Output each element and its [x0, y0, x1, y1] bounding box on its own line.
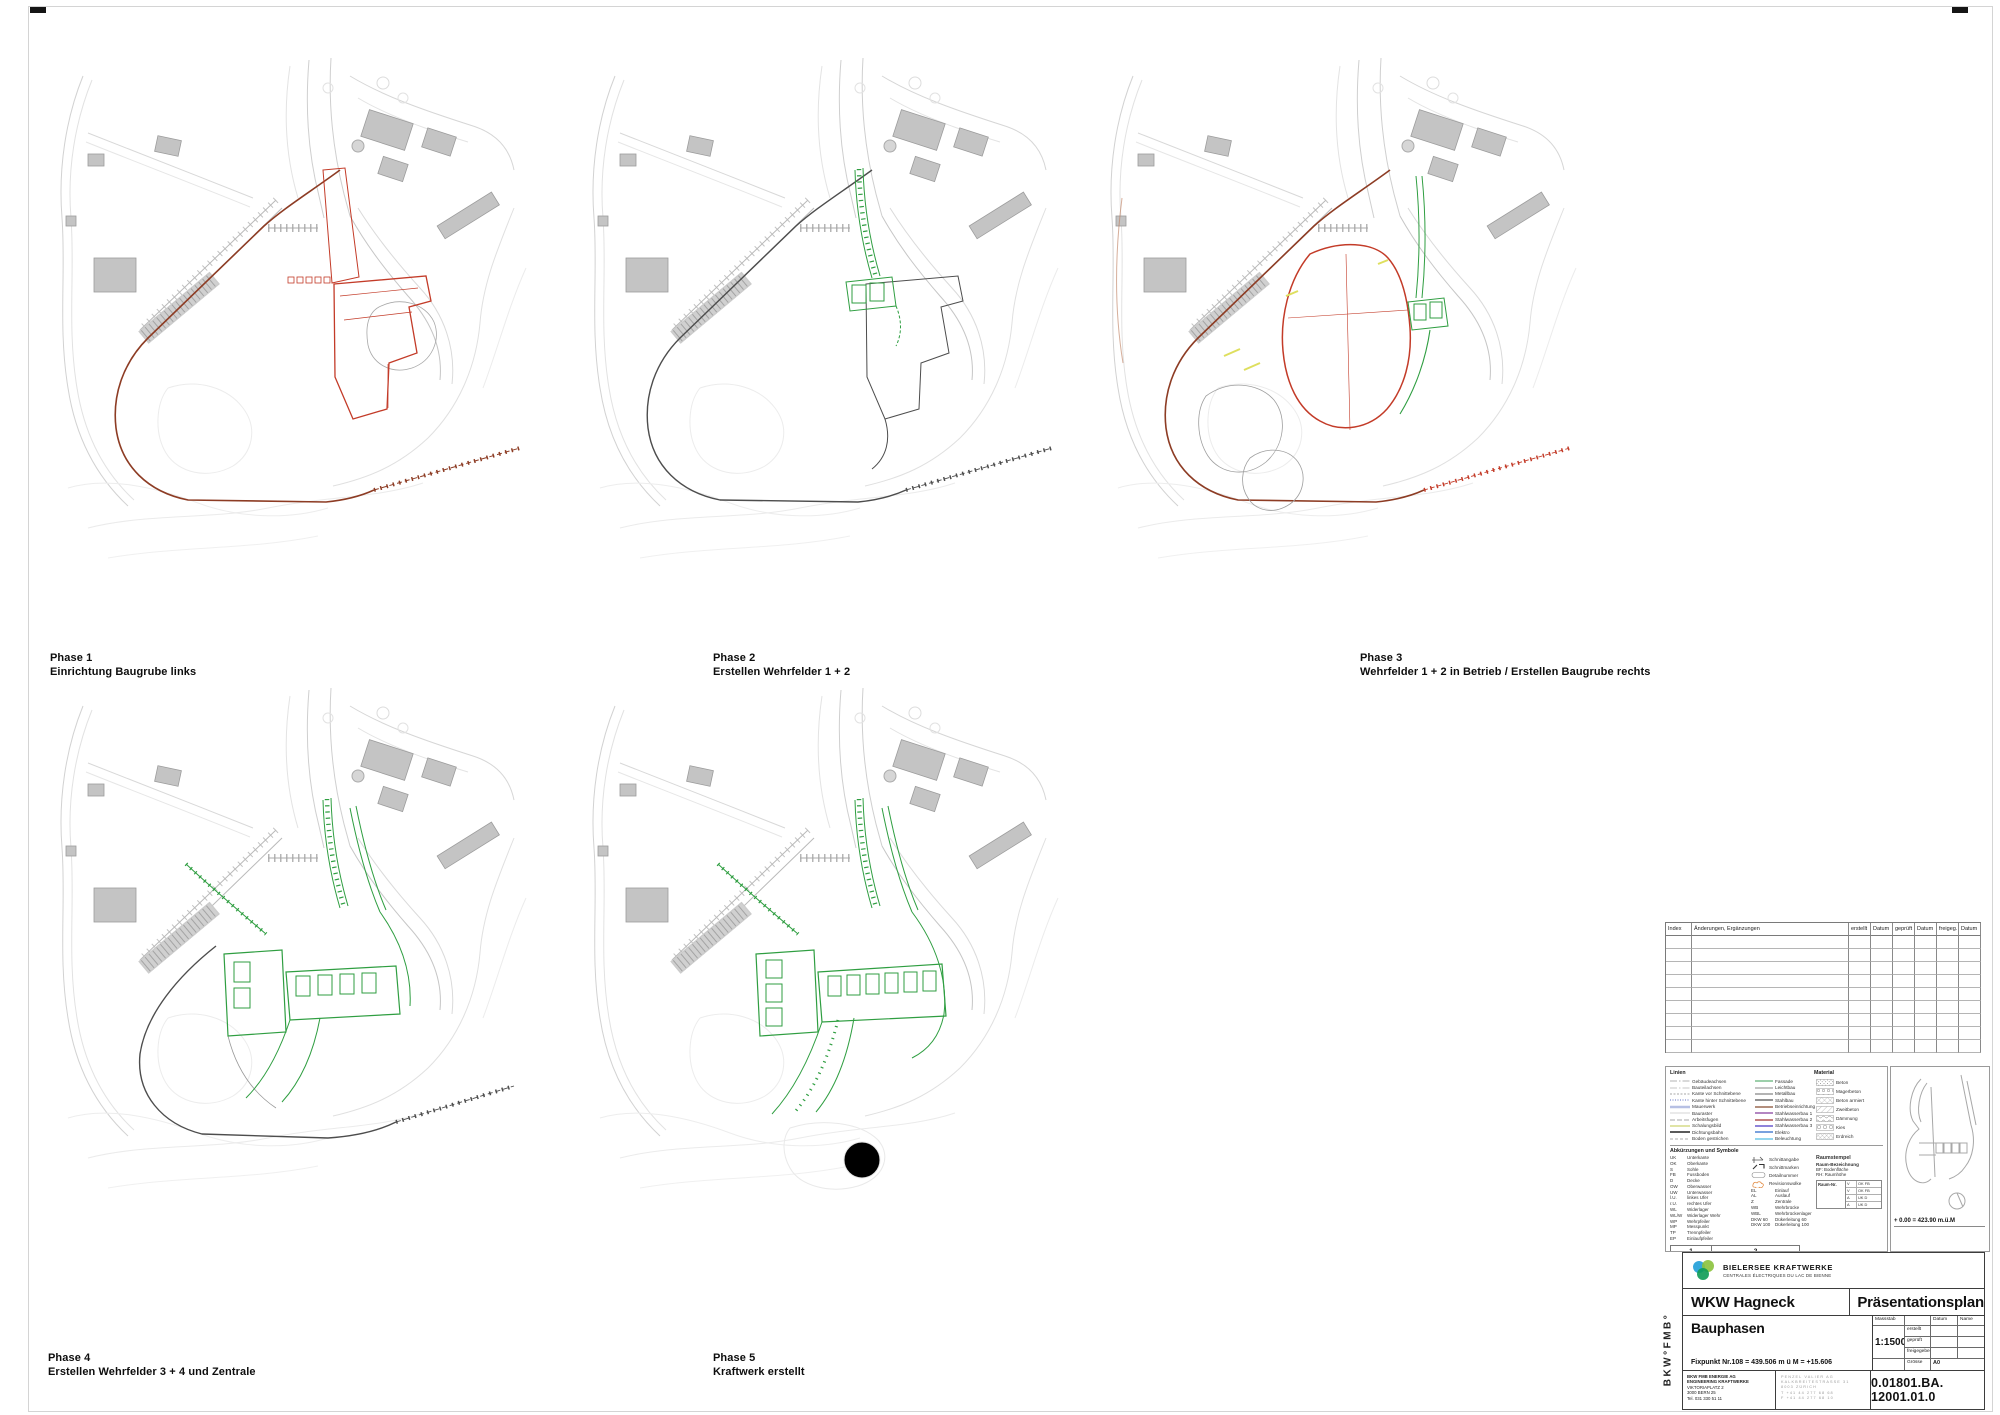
revision-cell [1849, 936, 1871, 949]
legend-label: Boden gestrichen [1692, 1136, 1728, 1141]
legend-line-item: Stahlwasserbau 3 [1755, 1123, 1815, 1129]
sheet-title-cell: Bauphasen Fixpunkt Nr.108 = 439.506 m ü … [1683, 1316, 1873, 1370]
approval-cell [1873, 1359, 1905, 1370]
approval-cell [1958, 1337, 1984, 1348]
revision-header-cell: Datum [1871, 923, 1893, 936]
raumstempel-table: Raum-Nr. V OK FBV OK FBA UK DA UK D [1816, 1180, 1882, 1209]
legend-material-item: Beton armiert [1816, 1096, 1886, 1105]
revision-cell [1871, 975, 1893, 988]
phase-2-label: Phase 2 Erstellen Wehrfelder 1 + 2 [713, 651, 850, 679]
phase-5-label: Phase 5 Kraftwerk erstellt [713, 1351, 805, 1379]
phase-1-plan [28, 58, 528, 638]
revision-cell [1959, 988, 1981, 1001]
revision-cell [1849, 988, 1871, 1001]
legend-abbreviations: Abkürzungen und Symbole UK UnterkanteOK … [1670, 1145, 1883, 1242]
document-type: Präsentationsplan [1850, 1289, 1984, 1315]
legend-symbol-item: Revisionswolke [1751, 1179, 1815, 1187]
weir-fields-1-2 [846, 168, 901, 346]
legend-label: Betriebseinrichtungen [1775, 1104, 1815, 1109]
company-address: BKW FMB ENERGIE AG ENGINEERING KRAFTWERK… [1683, 1371, 1776, 1409]
revision-cell [1893, 962, 1915, 975]
room-row: A UK D [1846, 1202, 1881, 1208]
legend-label: Fassade [1775, 1079, 1793, 1084]
revision-cell [1871, 1001, 1893, 1014]
logo-title: BIELERSEE KRAFTWERKE [1723, 1263, 1833, 1272]
phase-title: Phase 5 [713, 1351, 805, 1365]
phase-subtitle: Erstellen Wehrfelder 3 + 4 und Zentrale [48, 1365, 256, 1379]
company-line: Tel. 031 330 51 11 [1687, 1396, 1771, 1401]
revision-cell [1849, 1001, 1871, 1014]
construction-structure [288, 168, 431, 419]
revision-cell [1849, 949, 1871, 962]
room-cell: V [1846, 1188, 1857, 1194]
revision-cell [1666, 988, 1692, 1001]
detail-number-icon [1751, 1171, 1767, 1179]
revision-cell [1692, 949, 1849, 962]
revision-header-cell: freigeg. [1937, 923, 1959, 936]
legend-line-sample [1755, 1097, 1773, 1103]
marking-lines [1224, 260, 1388, 370]
revision-cell [1937, 949, 1959, 962]
phase-4-label: Phase 4 Erstellen Wehrfelder 3 + 4 und Z… [48, 1351, 256, 1379]
revision-cell [1893, 936, 1915, 949]
geprueft-label: geprüft [1905, 1337, 1931, 1348]
revision-cell [1871, 988, 1893, 1001]
legend-label: Stahlwasserbau 2 [1775, 1117, 1812, 1122]
phase-subtitle: Wehrfelder 1 + 2 in Betrieb / Erstellen … [1360, 665, 1650, 679]
raumstempel-header: Raumstempel [1816, 1155, 1886, 1162]
phase-subtitle: Kraftwerk erstellt [713, 1365, 805, 1379]
abbrev-code: DKW 100 [1751, 1222, 1775, 1228]
consultant-line: F +41 44 277 68 10 [1781, 1396, 1865, 1401]
revision-cell [1959, 1040, 1981, 1053]
room-cell: OK FB [1857, 1188, 1870, 1194]
legend-label: Schnittmarken [1769, 1165, 1799, 1170]
drawing-number: 0.01801.BA. 12001.01.0 [1871, 1371, 1984, 1409]
legend-line-item: Stahlwasserbau 2 [1755, 1116, 1815, 1122]
legend-label: Detailnummer [1769, 1173, 1798, 1178]
abbreviation-item: DKW 100 Dükerleitung 100 [1751, 1222, 1815, 1228]
fixpoint-note: Fixpunkt Nr.108 = 439.506 m ü M = +15.60… [1691, 1359, 1832, 1366]
phase-5-overlay [718, 798, 946, 1189]
room-cell: A [1846, 1202, 1857, 1208]
room-row: V OK FB [1846, 1188, 1881, 1195]
legend-line-item: Betriebseinrichtungen [1755, 1104, 1815, 1110]
legend-line-sample [1670, 1123, 1690, 1129]
legend-label: Zweitbeton [1836, 1107, 1859, 1112]
revision-cell [1937, 1027, 1959, 1040]
revision-cell [1915, 975, 1937, 988]
legend-label: Leichtbau [1775, 1085, 1795, 1090]
revision-cell [1692, 1001, 1849, 1014]
revision-cell [1849, 1014, 1871, 1027]
legend-label: Kies [1836, 1125, 1845, 1130]
revision-cell [1849, 962, 1871, 975]
room-rows: V OK FBV OK FBA UK DA UK D [1846, 1181, 1881, 1208]
legend-col-materials: Beton Magerbeton Beton armiert Zweitbeto… [1816, 1078, 1886, 1142]
revision-cell [1915, 936, 1937, 949]
legend-line-sample [1670, 1110, 1690, 1116]
room-cell: A [1846, 1195, 1857, 1201]
legend-label: Dichtungsbahn [1692, 1130, 1723, 1135]
legend-material-item: Kies [1816, 1123, 1886, 1132]
revision-header-cell: erstellt [1849, 923, 1871, 936]
legend-label: Magerbeton [1836, 1089, 1861, 1094]
freigegeben-label: freigegeben [1905, 1348, 1931, 1359]
revision-cell [1849, 1040, 1871, 1053]
revision-cell [1692, 1027, 1849, 1040]
title-block: BIELERSEE KRAFTWERKE CENTRALES ÉLECTRIQU… [1682, 1252, 1985, 1410]
name-col-header: Name [1958, 1316, 1984, 1326]
legend-label: Beleuchtung [1775, 1136, 1801, 1141]
gravel-pond [367, 302, 436, 370]
revision-cell [1959, 1001, 1981, 1014]
phase-5-plan [560, 688, 1060, 1268]
revision-cell [1666, 936, 1692, 949]
legend-panel: Linien Material Gebäudeachsen Bauteilach… [1665, 1066, 1888, 1252]
logo-subtitle: CENTRALES ÉLECTRIQUES DU LAC DE BIENNE [1723, 1273, 1833, 1278]
revision-cell [1666, 1027, 1692, 1040]
legend-material-item: Magerbeton [1816, 1087, 1886, 1096]
legend-label: Kante vor Schnittebene [1692, 1091, 1741, 1096]
plan-sheet: Phase 1 Einrichtung Baugrube links Phase… [0, 0, 2000, 1415]
room-cell: OK FB [1857, 1181, 1870, 1187]
legend-col-lines-b: Fassade Leichtbau Metallbau Stahlbau Bet… [1755, 1078, 1815, 1142]
phase-title: Phase 3 [1360, 651, 1650, 665]
room-row: V OK FB [1846, 1181, 1881, 1188]
abbrev-meaning: Dükerleitung 100 [1775, 1222, 1815, 1228]
phase-title: Phase 2 [713, 651, 850, 665]
legend-label: Revisionswolke [1769, 1181, 1801, 1186]
legend-label: Metallbau [1775, 1091, 1795, 1096]
room-cell: UK D [1857, 1195, 1867, 1201]
legend-line-item: Boden gestrichen [1670, 1136, 1754, 1142]
revision-cell [1915, 962, 1937, 975]
legend-line-sample [1755, 1078, 1773, 1084]
abbreviations-header: Abkürzungen und Symbole [1670, 1148, 1883, 1155]
abbrev-code: EP [1670, 1236, 1687, 1242]
revision-cell [1915, 988, 1937, 1001]
phase-3-drawing [1078, 58, 1578, 638]
datum-note: + 0.00 = 423.90 m.ü.M [1894, 1218, 1985, 1227]
revision-header-cell: Datum [1959, 923, 1981, 936]
legend-line-sample [1755, 1129, 1773, 1135]
raumstempel-col: Raumstempel Raum-Bezeichnung BF: Bodenfl… [1816, 1155, 1886, 1242]
scale-label: Massstab [1873, 1316, 1905, 1326]
datum-col-header: Datum [1931, 1316, 1958, 1326]
raumstempel-line: RH: Raumhöhe [1816, 1172, 1886, 1177]
revision-cell [1937, 1001, 1959, 1014]
legend-line-sample [1755, 1136, 1773, 1142]
completed-powerplant [718, 798, 946, 1114]
sheet-title: Bauphasen [1691, 1320, 1864, 1336]
legend-grid: Gebäudeachsen Bauteilachsen Kante vor Sc… [1670, 1078, 1883, 1142]
legend-material-header: Material [1814, 1070, 1834, 1076]
revision-cell [1915, 949, 1937, 962]
revision-cell [1893, 1040, 1915, 1053]
legend-line-sample [1670, 1104, 1690, 1110]
revision-cell [1666, 1040, 1692, 1053]
legend-label: Schnittangabe [1769, 1157, 1799, 1162]
legend-line-sample [1670, 1097, 1690, 1103]
legend-line-item: Beleuchtung [1755, 1136, 1815, 1142]
revision-cell [1915, 1001, 1937, 1014]
legend-line-sample [1670, 1129, 1690, 1135]
revision-cell [1915, 1014, 1937, 1027]
legend-line-item: Stahlwasserbau 1 [1755, 1110, 1815, 1116]
legend-label: Stahlwasserbau 1 [1775, 1111, 1812, 1116]
phase-1-label: Phase 1 Einrichtung Baugrube links [50, 651, 196, 679]
revision-cell [1915, 1027, 1937, 1040]
legend-hatch-sample [1816, 1124, 1834, 1131]
legend-line-sample [1755, 1110, 1773, 1116]
approval-cell [1931, 1348, 1958, 1359]
section-mark-icon [1751, 1163, 1767, 1171]
phase-2-drawing [560, 58, 1060, 638]
revision-table: IndexÄnderungen, ErgänzungenerstelltDatu… [1665, 922, 1981, 1053]
legend-label: Arbeitsfugen [1692, 1117, 1718, 1122]
revision-cell [1893, 949, 1915, 962]
weir-fields-3-4-zentrale [186, 798, 410, 1102]
phase-1-drawing [28, 58, 528, 638]
scale-value: 1:1500 [1873, 1326, 1905, 1359]
section-arrow-icon [1751, 1155, 1767, 1163]
legend-label: Kante hinter Schnittebene [1692, 1098, 1746, 1103]
legend-label: Elektro [1775, 1130, 1790, 1135]
legend-line-sample [1670, 1117, 1690, 1123]
phase-4-plan [28, 688, 528, 1268]
legend-line-item: Kante hinter Schnittebene [1670, 1097, 1754, 1103]
excavation-right [1282, 245, 1410, 430]
revision-cell [1937, 1040, 1959, 1053]
revision-cell [1937, 1014, 1959, 1027]
legend-headers: Linien Material [1670, 1070, 1883, 1077]
phase-5-drawing [560, 688, 1060, 1268]
legend-label: Erdreich [1836, 1134, 1853, 1139]
size-value: A0 [1931, 1359, 1984, 1370]
revision-cell [1871, 949, 1893, 962]
approval-table: Massstab Datum Name 1:1500 erstellt gepr… [1873, 1316, 1984, 1370]
revision-cell [1893, 988, 1915, 1001]
revision-cell [1959, 1027, 1981, 1040]
logo-text: BIELERSEE KRAFTWERKE CENTRALES ÉLECTRIQU… [1723, 1263, 1833, 1278]
legend-line-sample [1670, 1091, 1690, 1097]
revision-cell [1849, 1027, 1871, 1040]
revision-cell [1871, 1027, 1893, 1040]
weir-in-operation [1400, 176, 1448, 414]
tailrace-contour [844, 1142, 880, 1178]
revision-cell [1959, 949, 1981, 962]
revision-cell [1666, 1014, 1692, 1027]
crop-mark-icon [30, 7, 46, 13]
approval-cell [1931, 1326, 1958, 1337]
legend-symbol-item: Detailnummer [1751, 1171, 1815, 1179]
approval-cell [1931, 1337, 1958, 1348]
approval-cell [1905, 1316, 1931, 1326]
phase-subtitle: Einrichtung Baugrube links [50, 665, 196, 679]
revision-cloud-icon [1751, 1180, 1767, 1188]
legend-label: Mauerwerk [1692, 1104, 1715, 1109]
legend-label: Schalungsbild [1692, 1123, 1721, 1128]
legend-label: Bauraster [1692, 1111, 1712, 1116]
legend-col-lines-a: Gebäudeachsen Bauteilachsen Kante vor Sc… [1670, 1078, 1754, 1142]
phase-2-plan [560, 58, 1060, 638]
legend-hatch-sample [1816, 1088, 1834, 1095]
revision-cell [1871, 962, 1893, 975]
room-number-label: Raum-Nr. [1817, 1181, 1846, 1208]
phase-3-plan [1078, 58, 1578, 638]
revision-cell [1871, 1040, 1893, 1053]
phase-4-drawing [28, 688, 528, 1268]
revision-cell [1692, 962, 1849, 975]
revision-cell [1871, 1014, 1893, 1027]
revision-header-cell: Index [1666, 923, 1692, 936]
revision-cell [1849, 975, 1871, 988]
legend-hatch-sample [1816, 1079, 1834, 1086]
legend-line-sample [1755, 1123, 1773, 1129]
revision-cell [1937, 962, 1959, 975]
revision-cell [1692, 936, 1849, 949]
phase-3-label: Phase 3 Wehrfelder 1 + 2 in Betrieb / Er… [1360, 651, 1650, 679]
revision-cell [1937, 988, 1959, 1001]
room-cell: V [1846, 1181, 1857, 1187]
legend-hatch-sample [1816, 1133, 1834, 1140]
revision-cell [1666, 975, 1692, 988]
abbreviation-item: EP Einlaufpfeiler [1670, 1236, 1750, 1242]
footer-row: BKW FMB ENERGIE AG ENGINEERING KRAFTWERK… [1683, 1371, 1984, 1409]
size-label: Grösse [1905, 1359, 1931, 1370]
revision-cell [1959, 962, 1981, 975]
revision-cell [1893, 975, 1915, 988]
legend-label: Stahlwasserbau 3 [1775, 1123, 1812, 1128]
revision-header-cell: Datum [1915, 923, 1937, 936]
legend-line-sample [1670, 1078, 1690, 1084]
abbrev-col-2: Schnittangabe Schnittmarken Detailnummer… [1751, 1155, 1815, 1242]
sheet-index-tabs: 1 2 [1670, 1245, 1883, 1252]
revision-cell [1893, 1014, 1915, 1027]
legend-label: Gebäudeachsen [1692, 1079, 1726, 1084]
revision-cell [1871, 936, 1893, 949]
phase-title: Phase 4 [48, 1351, 256, 1365]
title-row: WKW Hagneck Präsentationsplan [1683, 1289, 1984, 1316]
abbrev-meaning: Einlaufpfeiler [1687, 1236, 1750, 1242]
phase-subtitle: Erstellen Wehrfelder 1 + 2 [713, 665, 850, 679]
room-row: A UK D [1846, 1195, 1881, 1202]
crop-mark-icon [1952, 7, 1968, 13]
revision-cell [1692, 975, 1849, 988]
erstellt-label: erstellt [1905, 1326, 1931, 1337]
side-brand-label: BKW°FMB° [1663, 1302, 1674, 1398]
legend-symbol-item: Schnittmarken [1751, 1163, 1815, 1171]
revision-cell [1915, 1040, 1937, 1053]
revision-cell [1959, 1014, 1981, 1027]
revision-cell [1692, 1014, 1849, 1027]
room-cell: UK D [1857, 1202, 1867, 1208]
legend-material-item: Erdreich [1816, 1132, 1886, 1141]
revision-header-cell: geprüft [1893, 923, 1915, 936]
legend-line-sample [1670, 1085, 1690, 1091]
legend-label: Bauteilachsen [1692, 1085, 1721, 1090]
legend-hatch-sample [1816, 1097, 1834, 1104]
consultant-address: PENZEL VALIER AG KALKBREITESTRASSE 31 80… [1776, 1371, 1871, 1409]
revision-header-cell: Änderungen, Ergänzungen [1692, 923, 1849, 936]
legend-line-sample [1755, 1091, 1773, 1097]
legend-label: Beton armiert [1836, 1098, 1864, 1103]
legend-line-sample [1670, 1136, 1690, 1142]
bielersee-kraftwerke-logo-icon [1691, 1258, 1717, 1284]
legend-material-item: Zweitbeton [1816, 1105, 1886, 1114]
legend-line-sample [1755, 1104, 1773, 1110]
approval-cell [1958, 1326, 1984, 1337]
abbrev-col-1: UK UnterkanteOK OberkanteS SohleFB Fussb… [1670, 1155, 1750, 1242]
legend-symbol-item: Schnittangabe [1751, 1155, 1815, 1163]
legend-material-item: Dämmung [1816, 1114, 1886, 1123]
subtitle-row: Bauphasen Fixpunkt Nr.108 = 439.506 m ü … [1683, 1316, 1984, 1371]
sheet-tab-2: 2 [1712, 1245, 1800, 1252]
legend-hatch-sample [1816, 1115, 1834, 1122]
legend-line-sample [1755, 1117, 1773, 1123]
project-name: WKW Hagneck [1683, 1289, 1850, 1315]
key-section-sketch [1891, 1067, 1989, 1217]
logo-row: BIELERSEE KRAFTWERKE CENTRALES ÉLECTRIQU… [1683, 1253, 1984, 1289]
approval-cell [1958, 1348, 1984, 1359]
phase-title: Phase 1 [50, 651, 196, 665]
revision-cell [1666, 949, 1692, 962]
key-plan-panel: + 0.00 = 423.90 m.ü.M [1890, 1066, 1990, 1252]
revision-cell [1959, 975, 1981, 988]
revision-cell [1893, 1027, 1915, 1040]
legend-lines-header: Linien [1670, 1070, 1686, 1076]
revision-cell [1666, 962, 1692, 975]
legend-material-item: Beton [1816, 1078, 1886, 1087]
legend-hatch-sample [1816, 1106, 1834, 1113]
revision-cell [1692, 1040, 1849, 1053]
legend-line-sample [1755, 1085, 1773, 1091]
revision-cell [1893, 1001, 1915, 1014]
legend-label: Stahlbau [1775, 1098, 1794, 1103]
sheet-tab-1: 1 [1670, 1245, 1712, 1252]
revision-cell [1692, 988, 1849, 1001]
revision-cell [1959, 936, 1981, 949]
revision-cell [1937, 936, 1959, 949]
legend-label: Beton [1836, 1080, 1848, 1085]
legend-label: Dämmung [1836, 1116, 1858, 1121]
revision-cell [1937, 975, 1959, 988]
revision-cell [1666, 1001, 1692, 1014]
